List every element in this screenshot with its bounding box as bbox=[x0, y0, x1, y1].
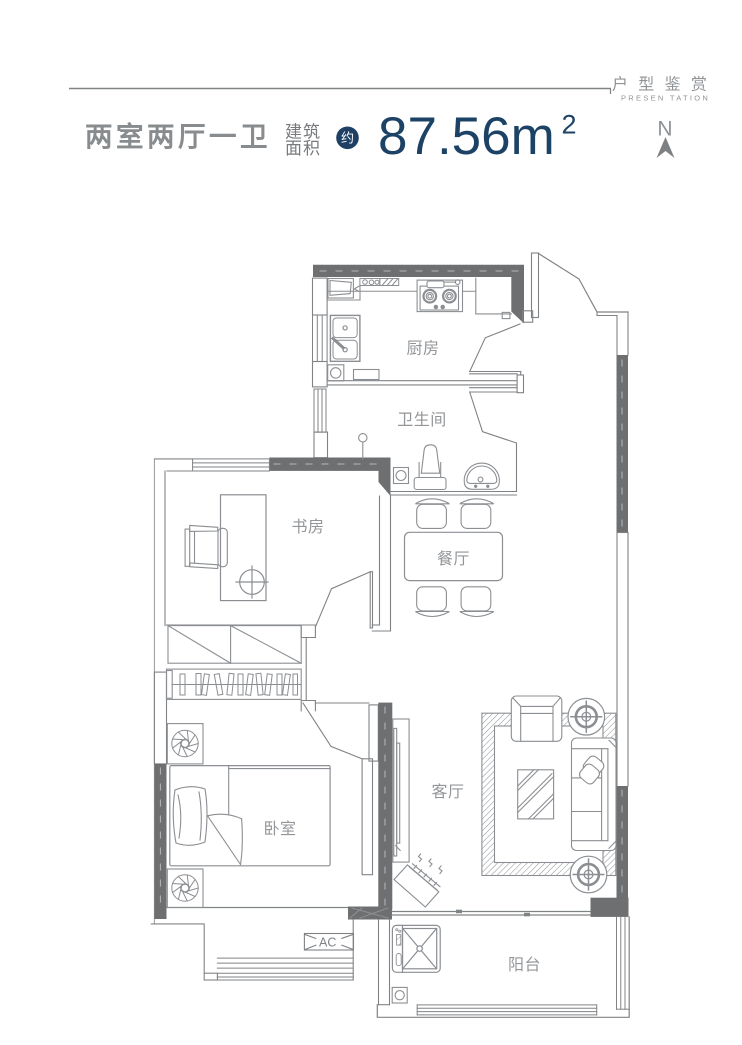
svg-text:87.56m: 87.56m bbox=[378, 107, 555, 166]
svg-text:阳台: 阳台 bbox=[508, 956, 541, 974]
svg-text:书房: 书房 bbox=[291, 518, 324, 536]
svg-text:AC: AC bbox=[319, 936, 336, 950]
svg-text:餐厅: 餐厅 bbox=[437, 550, 470, 568]
svg-text:卫生间: 卫生间 bbox=[397, 411, 447, 429]
svg-text:厨房: 厨房 bbox=[406, 340, 439, 358]
svg-text:2: 2 bbox=[562, 110, 577, 140]
svg-text:户型鉴赏: 户型鉴赏 bbox=[612, 76, 717, 94]
svg-text:两室两厅一卫: 两室两厅一卫 bbox=[85, 121, 271, 152]
svg-text:N: N bbox=[657, 118, 672, 141]
svg-text:PRESEN TATION: PRESEN TATION bbox=[621, 94, 710, 103]
svg-text:面积: 面积 bbox=[285, 139, 321, 158]
svg-text:约: 约 bbox=[341, 131, 354, 146]
svg-text:客厅: 客厅 bbox=[431, 783, 464, 801]
svg-text:卧室: 卧室 bbox=[263, 820, 296, 838]
